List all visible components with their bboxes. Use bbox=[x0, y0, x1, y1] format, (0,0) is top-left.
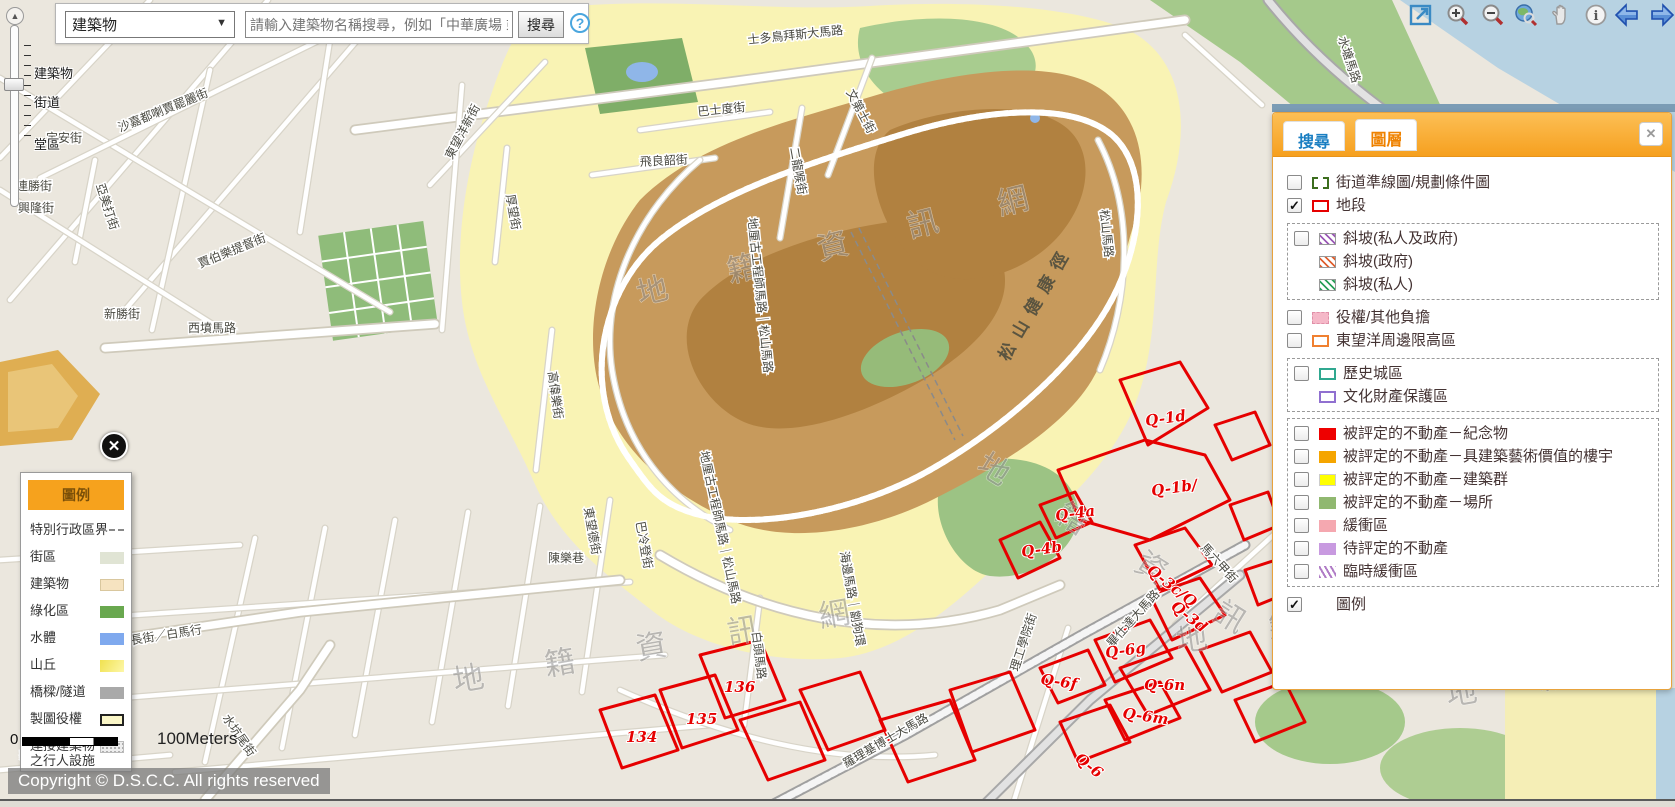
zoom-tick bbox=[24, 135, 31, 136]
layer-swatch-monument bbox=[1319, 428, 1336, 440]
layer-checkbox[interactable] bbox=[1287, 175, 1302, 190]
layer-row[interactable]: 斜坡(私人) bbox=[1294, 273, 1652, 296]
street-label: 陳樂巷 bbox=[548, 550, 584, 565]
panel-top-strip bbox=[1272, 104, 1675, 112]
layer-swatch-slope-both bbox=[1319, 233, 1336, 245]
zoom-level-label: 堂區 bbox=[34, 134, 60, 153]
zoom-tick bbox=[24, 95, 31, 96]
zoom-tick bbox=[24, 115, 31, 116]
zoom-level-label: 街道 bbox=[34, 92, 60, 111]
panel-header: 搜尋 圖層 ✕ bbox=[1273, 113, 1671, 157]
layer-swatch-historic bbox=[1319, 368, 1336, 380]
layer-row[interactable]: 被評定的不動產－紀念物 bbox=[1294, 422, 1652, 445]
layer-checkbox[interactable] bbox=[1287, 333, 1302, 348]
full-extent-icon[interactable] bbox=[1513, 3, 1539, 27]
layer-label: 街道準線圖/規劃條件圖 bbox=[1336, 173, 1659, 193]
next-extent-icon[interactable] bbox=[1649, 3, 1675, 27]
parcel-label: 134 bbox=[626, 728, 657, 746]
layer-group: 歷史城區文化財產保護區 bbox=[1287, 358, 1659, 412]
layer-row[interactable]: 被評定的不動產－建築群 bbox=[1294, 468, 1652, 491]
layer-swatch-artistic bbox=[1319, 451, 1336, 463]
layer-checkbox[interactable] bbox=[1294, 495, 1309, 510]
zoom-slider-top-button[interactable]: ▲ bbox=[6, 7, 24, 25]
layer-checkbox[interactable]: ✓ bbox=[1287, 198, 1302, 213]
zoom-level-label: 建築物 bbox=[34, 63, 73, 82]
layer-swatch-buffer bbox=[1319, 520, 1336, 532]
legend-title: 圖例 bbox=[28, 480, 124, 510]
layer-label: 被評定的不動產－場所 bbox=[1343, 493, 1652, 513]
legend-label: 山丘 bbox=[30, 657, 56, 672]
tab-layers[interactable]: 圖層 bbox=[1355, 119, 1417, 151]
layer-row[interactable]: 被評定的不動產－場所 bbox=[1294, 491, 1652, 514]
layer-row[interactable]: 歷史城區 bbox=[1294, 362, 1652, 385]
zoom-out-icon[interactable] bbox=[1480, 3, 1506, 27]
layer-checkbox[interactable] bbox=[1294, 564, 1309, 579]
legend-label: 水體 bbox=[30, 630, 56, 645]
layer-swatch-slope-priv bbox=[1319, 279, 1336, 291]
legend-row: 綠化區 bbox=[21, 598, 131, 625]
legend-label: 製圖役權 bbox=[30, 711, 82, 726]
layer-label: 圖例 bbox=[1336, 595, 1659, 615]
layer-checkbox[interactable] bbox=[1294, 449, 1309, 464]
street-label: 新勝街 bbox=[104, 306, 140, 321]
layer-checkbox[interactable] bbox=[1294, 366, 1309, 381]
zoom-tick bbox=[24, 75, 31, 76]
layer-row[interactable]: ✓圖例 bbox=[1287, 593, 1659, 616]
chevron-down-icon: ▼ bbox=[216, 17, 227, 29]
legend-label: 建築物 bbox=[30, 576, 69, 591]
search-input[interactable] bbox=[245, 11, 513, 38]
legend-row: 製圖役權 bbox=[21, 706, 131, 733]
zoom-slider-track[interactable] bbox=[10, 25, 19, 207]
layer-checkbox[interactable] bbox=[1294, 426, 1309, 441]
search-category-select[interactable]: 建築物 ▼ bbox=[65, 11, 235, 38]
legend-symbol-admin-boundary bbox=[100, 529, 124, 531]
garden-pond bbox=[626, 62, 658, 82]
layer-checkbox[interactable] bbox=[1294, 541, 1309, 556]
legend-row: 水體 bbox=[21, 625, 131, 652]
layer-label: 斜坡(私人及政府) bbox=[1343, 229, 1652, 249]
layer-row[interactable]: 文化財產保護區 bbox=[1294, 385, 1652, 408]
scale-label: 100Meters bbox=[157, 729, 237, 749]
layer-checkbox[interactable]: ✓ bbox=[1287, 597, 1302, 612]
layer-swatch-heritage bbox=[1319, 391, 1336, 403]
search-button[interactable]: 搜尋 bbox=[518, 11, 564, 38]
layer-row[interactable]: 緩衝區 bbox=[1294, 514, 1652, 537]
layer-label: 地段 bbox=[1336, 196, 1659, 216]
street-label: 連勝街 bbox=[16, 178, 52, 193]
zoom-tick bbox=[24, 85, 31, 86]
search-bar: 建築物 ▼ 搜尋 ? bbox=[55, 3, 589, 44]
layer-row[interactable]: 臨時緩衝區 bbox=[1294, 560, 1652, 583]
layer-row[interactable]: ✓地段 bbox=[1287, 194, 1659, 217]
legend-row: 山丘 bbox=[21, 652, 131, 679]
legend-row: 橋樑/隧道 bbox=[21, 679, 131, 706]
layer-label: 斜坡(私人) bbox=[1343, 275, 1652, 295]
info-icon[interactable]: i bbox=[1583, 3, 1609, 27]
tab-search[interactable]: 搜尋 bbox=[1283, 121, 1345, 151]
legend-label: 特別行政區界 bbox=[30, 522, 108, 537]
scale-zero: 0 bbox=[10, 731, 18, 748]
layer-list: 街道準線圖/規劃條件圖✓地段斜坡(私人及政府)斜坡(政府)斜坡(私人)役權/其他… bbox=[1273, 157, 1671, 616]
layer-row[interactable]: 街道準線圖/規劃條件圖 bbox=[1287, 171, 1659, 194]
full-screen-icon[interactable] bbox=[1408, 3, 1434, 27]
zoom-tick bbox=[24, 105, 31, 106]
legend-row: 街區 bbox=[21, 544, 131, 571]
layer-checkbox[interactable] bbox=[1294, 472, 1309, 487]
layer-label: 臨時緩衝區 bbox=[1343, 562, 1652, 582]
street-label: 興隆街 bbox=[18, 200, 54, 215]
legend-close-button[interactable]: ✕ bbox=[100, 432, 128, 460]
copyright-notice: Copyright © D.S.C.C. All rights reserved bbox=[8, 768, 330, 794]
zoom-in-icon[interactable] bbox=[1445, 3, 1471, 27]
legend-row: 特別行政區界 bbox=[21, 517, 131, 544]
zoom-tick bbox=[24, 125, 31, 126]
layer-row[interactable]: 役權/其他負擔 bbox=[1287, 306, 1659, 329]
layer-label: 被評定的不動產－具建築藝術價值的樓宇 bbox=[1343, 447, 1652, 467]
layer-swatch-lot bbox=[1312, 200, 1329, 212]
zoom-tick bbox=[24, 45, 31, 46]
parcel-label: Q-6n bbox=[1144, 676, 1185, 694]
layer-swatch-temp-buffer bbox=[1319, 566, 1336, 578]
bottom-strip bbox=[0, 799, 1675, 807]
layer-swatch-plan bbox=[1312, 177, 1329, 189]
layer-swatch-site bbox=[1319, 497, 1336, 509]
layer-group: 被評定的不動產－紀念物被評定的不動產－具建築藝術價值的樓宇被評定的不動產－建築群… bbox=[1287, 418, 1659, 587]
layer-row[interactable]: 斜坡(政府) bbox=[1294, 250, 1652, 273]
legend-symbol-hill bbox=[100, 660, 124, 672]
parcel-label: 135 bbox=[686, 710, 717, 728]
layer-label: 被評定的不動產－建築群 bbox=[1343, 470, 1652, 490]
layer-row[interactable]: 斜坡(私人及政府) bbox=[1294, 227, 1652, 250]
layer-label: 歷史城區 bbox=[1343, 364, 1652, 384]
checkbox-spacer bbox=[1294, 277, 1309, 292]
legend-symbol-water bbox=[100, 633, 124, 645]
layer-swatch-easement bbox=[1312, 312, 1329, 324]
layer-swatch-height-limit bbox=[1312, 335, 1329, 347]
legend-label: 橋樑/隧道 bbox=[30, 684, 86, 699]
layers-panel: 搜尋 圖層 ✕ 街道準線圖/規劃條件圖✓地段斜坡(私人及政府)斜坡(政府)斜坡(… bbox=[1272, 112, 1672, 690]
sea-sliver bbox=[1656, 688, 1675, 807]
layer-section: ✓圖例 bbox=[1287, 593, 1659, 616]
legend-symbol-building bbox=[100, 579, 124, 591]
legend-row: 建築物 bbox=[21, 571, 131, 598]
legend-panel: 圖例 特別行政區界街區建築物綠化區水體山丘橋樑/隧道製圖役權連接建築物之行人設施 bbox=[20, 472, 132, 772]
layer-checkbox[interactable] bbox=[1294, 518, 1309, 533]
layer-row[interactable]: 東望洋周邊限高區 bbox=[1287, 329, 1659, 352]
street-label: 飛良韶街 bbox=[639, 152, 688, 169]
svg-text:i: i bbox=[1594, 9, 1599, 24]
legend-symbol-map-easement bbox=[100, 714, 124, 726]
previous-extent-icon[interactable] bbox=[1614, 3, 1640, 27]
zoom-tick bbox=[24, 65, 31, 66]
parcel-label: 136 bbox=[724, 678, 756, 696]
checkbox-spacer bbox=[1294, 254, 1309, 269]
panel-close-button[interactable]: ✕ bbox=[1639, 122, 1663, 146]
layer-label: 文化財產保護區 bbox=[1343, 387, 1652, 407]
layer-label: 役權/其他負擔 bbox=[1336, 308, 1659, 328]
zoom-tick bbox=[24, 55, 31, 56]
layer-row[interactable]: 待評定的不動產 bbox=[1294, 537, 1652, 560]
legend-symbol-green bbox=[100, 606, 124, 618]
layer-label: 待評定的不動產 bbox=[1343, 539, 1652, 559]
layer-row[interactable]: 被評定的不動產－具建築藝術價值的樓宇 bbox=[1294, 445, 1652, 468]
layer-section: 役權/其他負擔東望洋周邊限高區 bbox=[1287, 306, 1659, 352]
zoom-slider-handle[interactable] bbox=[4, 78, 24, 91]
layer-swatch-pending bbox=[1319, 543, 1336, 555]
layer-swatch-slope-gov bbox=[1319, 256, 1336, 268]
scale-bar bbox=[22, 737, 118, 746]
legend-symbol-bridge bbox=[100, 687, 124, 699]
legend-label: 綠化區 bbox=[30, 603, 69, 618]
legend-label: 街區 bbox=[30, 549, 56, 564]
map-application: 地 籍 資 訊 網地 籍 資 訊 網地 籍 資 訊 網地 籍 資 訊 網地 籍 … bbox=[0, 0, 1675, 807]
layer-label: 緩衝區 bbox=[1343, 516, 1652, 536]
layer-label: 被評定的不動產－紀念物 bbox=[1343, 424, 1652, 444]
pan-hand-icon[interactable] bbox=[1548, 3, 1574, 27]
layer-swatch-complex bbox=[1319, 474, 1336, 486]
layer-label: 斜坡(政府) bbox=[1343, 252, 1652, 272]
search-category-value: 建築物 bbox=[72, 17, 117, 34]
legend-symbol-block bbox=[100, 552, 124, 564]
street-label: 西墳馬路 bbox=[188, 320, 236, 335]
layer-label: 東望洋周邊限高區 bbox=[1336, 331, 1659, 351]
layer-section: 街道準線圖/規劃條件圖✓地段 bbox=[1287, 171, 1659, 217]
help-icon[interactable]: ? bbox=[570, 13, 590, 33]
layer-checkbox[interactable] bbox=[1294, 231, 1309, 246]
checkbox-spacer bbox=[1294, 389, 1309, 404]
yellow-southeast bbox=[1505, 688, 1675, 807]
layer-checkbox[interactable] bbox=[1287, 310, 1302, 325]
layer-group: 斜坡(私人及政府)斜坡(政府)斜坡(私人) bbox=[1287, 223, 1659, 300]
